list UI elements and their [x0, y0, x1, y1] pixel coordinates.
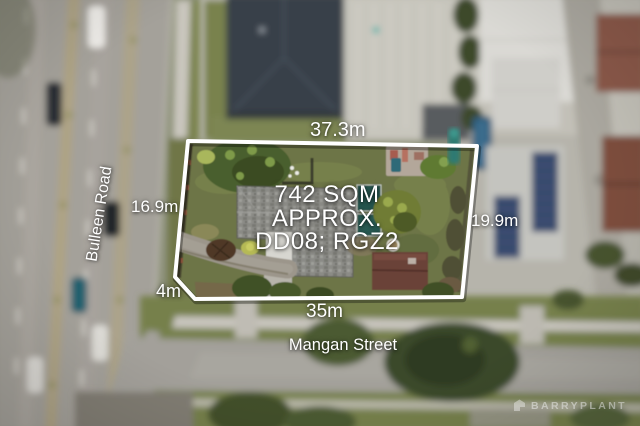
aerial-photo: 37.3m 16.9m 19.9m 4m 35m Bulleen Road Ma… [0, 0, 640, 426]
land-area-annotation: 742 SQM APPROX. DD08; RGZ2 [255, 183, 399, 254]
dimension-top: 37.3m [310, 119, 366, 142]
land-area-approx: APPROX. [255, 207, 399, 231]
land-area-size: 742 SQM [255, 183, 399, 207]
land-area-zoning: DD08; RGZ2 [255, 230, 399, 254]
car [46, 82, 62, 126]
car [88, 6, 105, 48]
street-label-mangan-street: Mangan Street [289, 336, 397, 355]
driveway [520, 306, 544, 344]
dimension-bottom: 35m [306, 301, 343, 323]
agency-name: BARRYPLANT [531, 400, 627, 412]
dimension-splay: 4m [156, 281, 181, 302]
driveway [235, 300, 257, 338]
car [92, 325, 108, 361]
car [71, 277, 87, 313]
agency-watermark: BARRYPLANT [513, 399, 627, 412]
car [27, 357, 43, 393]
dimension-left: 16.9m [131, 197, 178, 217]
solar-panels [532, 152, 558, 232]
dimension-right: 19.9m [471, 211, 518, 231]
barry-plant-logo-icon [513, 399, 526, 412]
